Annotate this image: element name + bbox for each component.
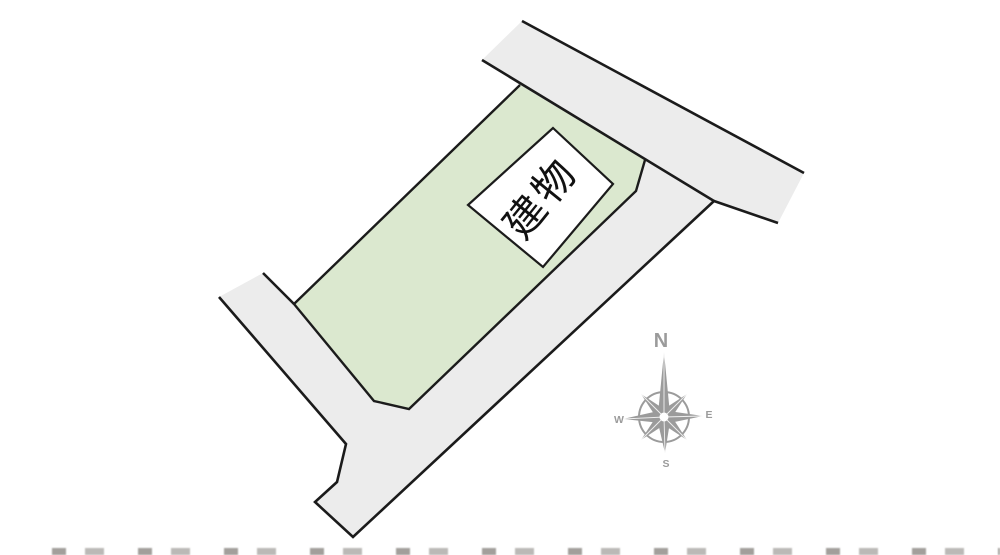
compass-label-east: E [705, 409, 712, 421]
compass-hub [660, 413, 669, 422]
site-plan-page: 建物 N E W S [0, 0, 1000, 555]
compass-label-south: S [662, 458, 669, 470]
compass-rose: N E W S [614, 330, 712, 470]
cropped-text-artifact [52, 548, 1000, 555]
site-plan-drawing: 建物 N E W S [0, 0, 1000, 555]
compass-label-north: N [654, 330, 668, 352]
compass-label-west: W [614, 414, 624, 426]
